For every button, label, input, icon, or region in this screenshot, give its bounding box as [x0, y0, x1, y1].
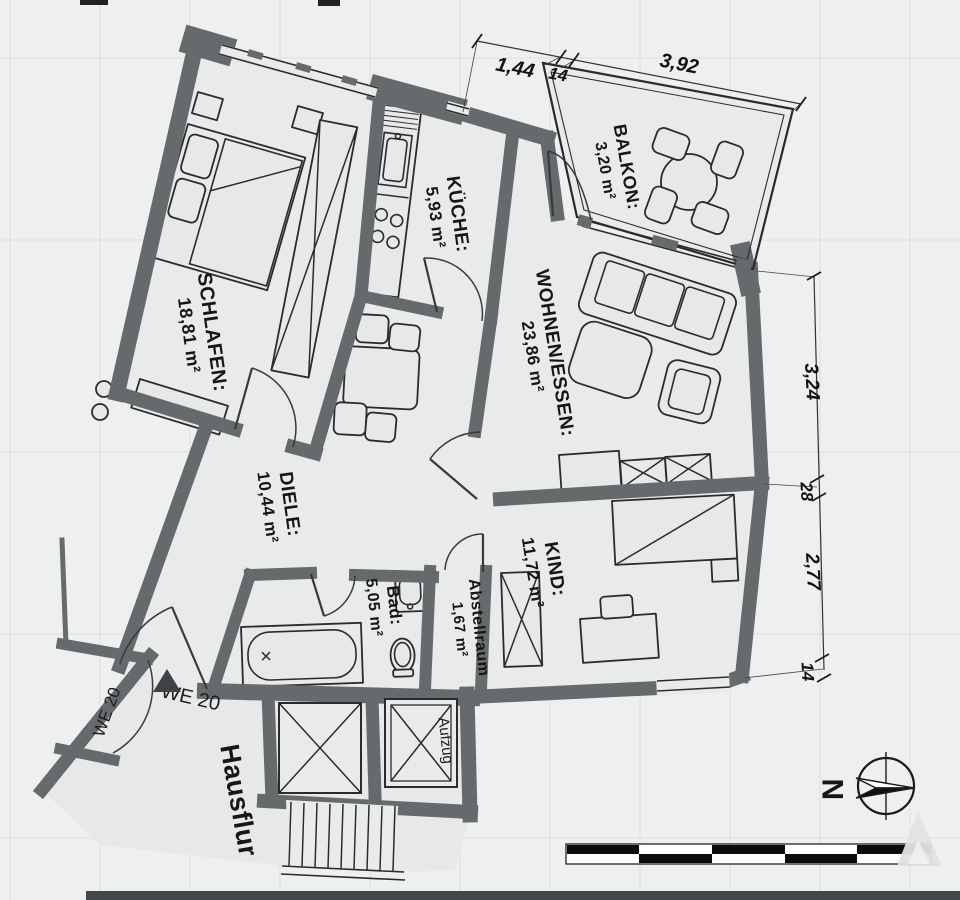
chair: [388, 323, 421, 352]
dim-right-1: 3,24: [800, 363, 823, 401]
dim-right-2: 28: [796, 481, 816, 502]
desk: [580, 614, 659, 663]
compass-n-letter: N: [817, 778, 850, 800]
stool: [92, 404, 108, 420]
floor-plan-canvas: SCHLAFEN:18,81 m² KÜCHE:5,93 m² BALKON:3…: [0, 0, 960, 900]
dining-table: [343, 346, 420, 410]
dim-right-3: 2,77: [801, 552, 824, 592]
bathtub: [241, 623, 363, 687]
floor-plan-page: SCHLAFEN:18,81 m² KÜCHE:5,93 m² BALKON:3…: [0, 0, 960, 900]
shaft: [279, 703, 361, 793]
chair: [365, 412, 397, 443]
toilet: [390, 638, 415, 677]
sideboard-x: [665, 454, 712, 484]
chair: [333, 402, 367, 436]
window-kind: [656, 673, 730, 696]
dim-right-4: 14: [798, 662, 818, 682]
desk-chair: [600, 595, 633, 619]
sideboard: [559, 451, 621, 491]
